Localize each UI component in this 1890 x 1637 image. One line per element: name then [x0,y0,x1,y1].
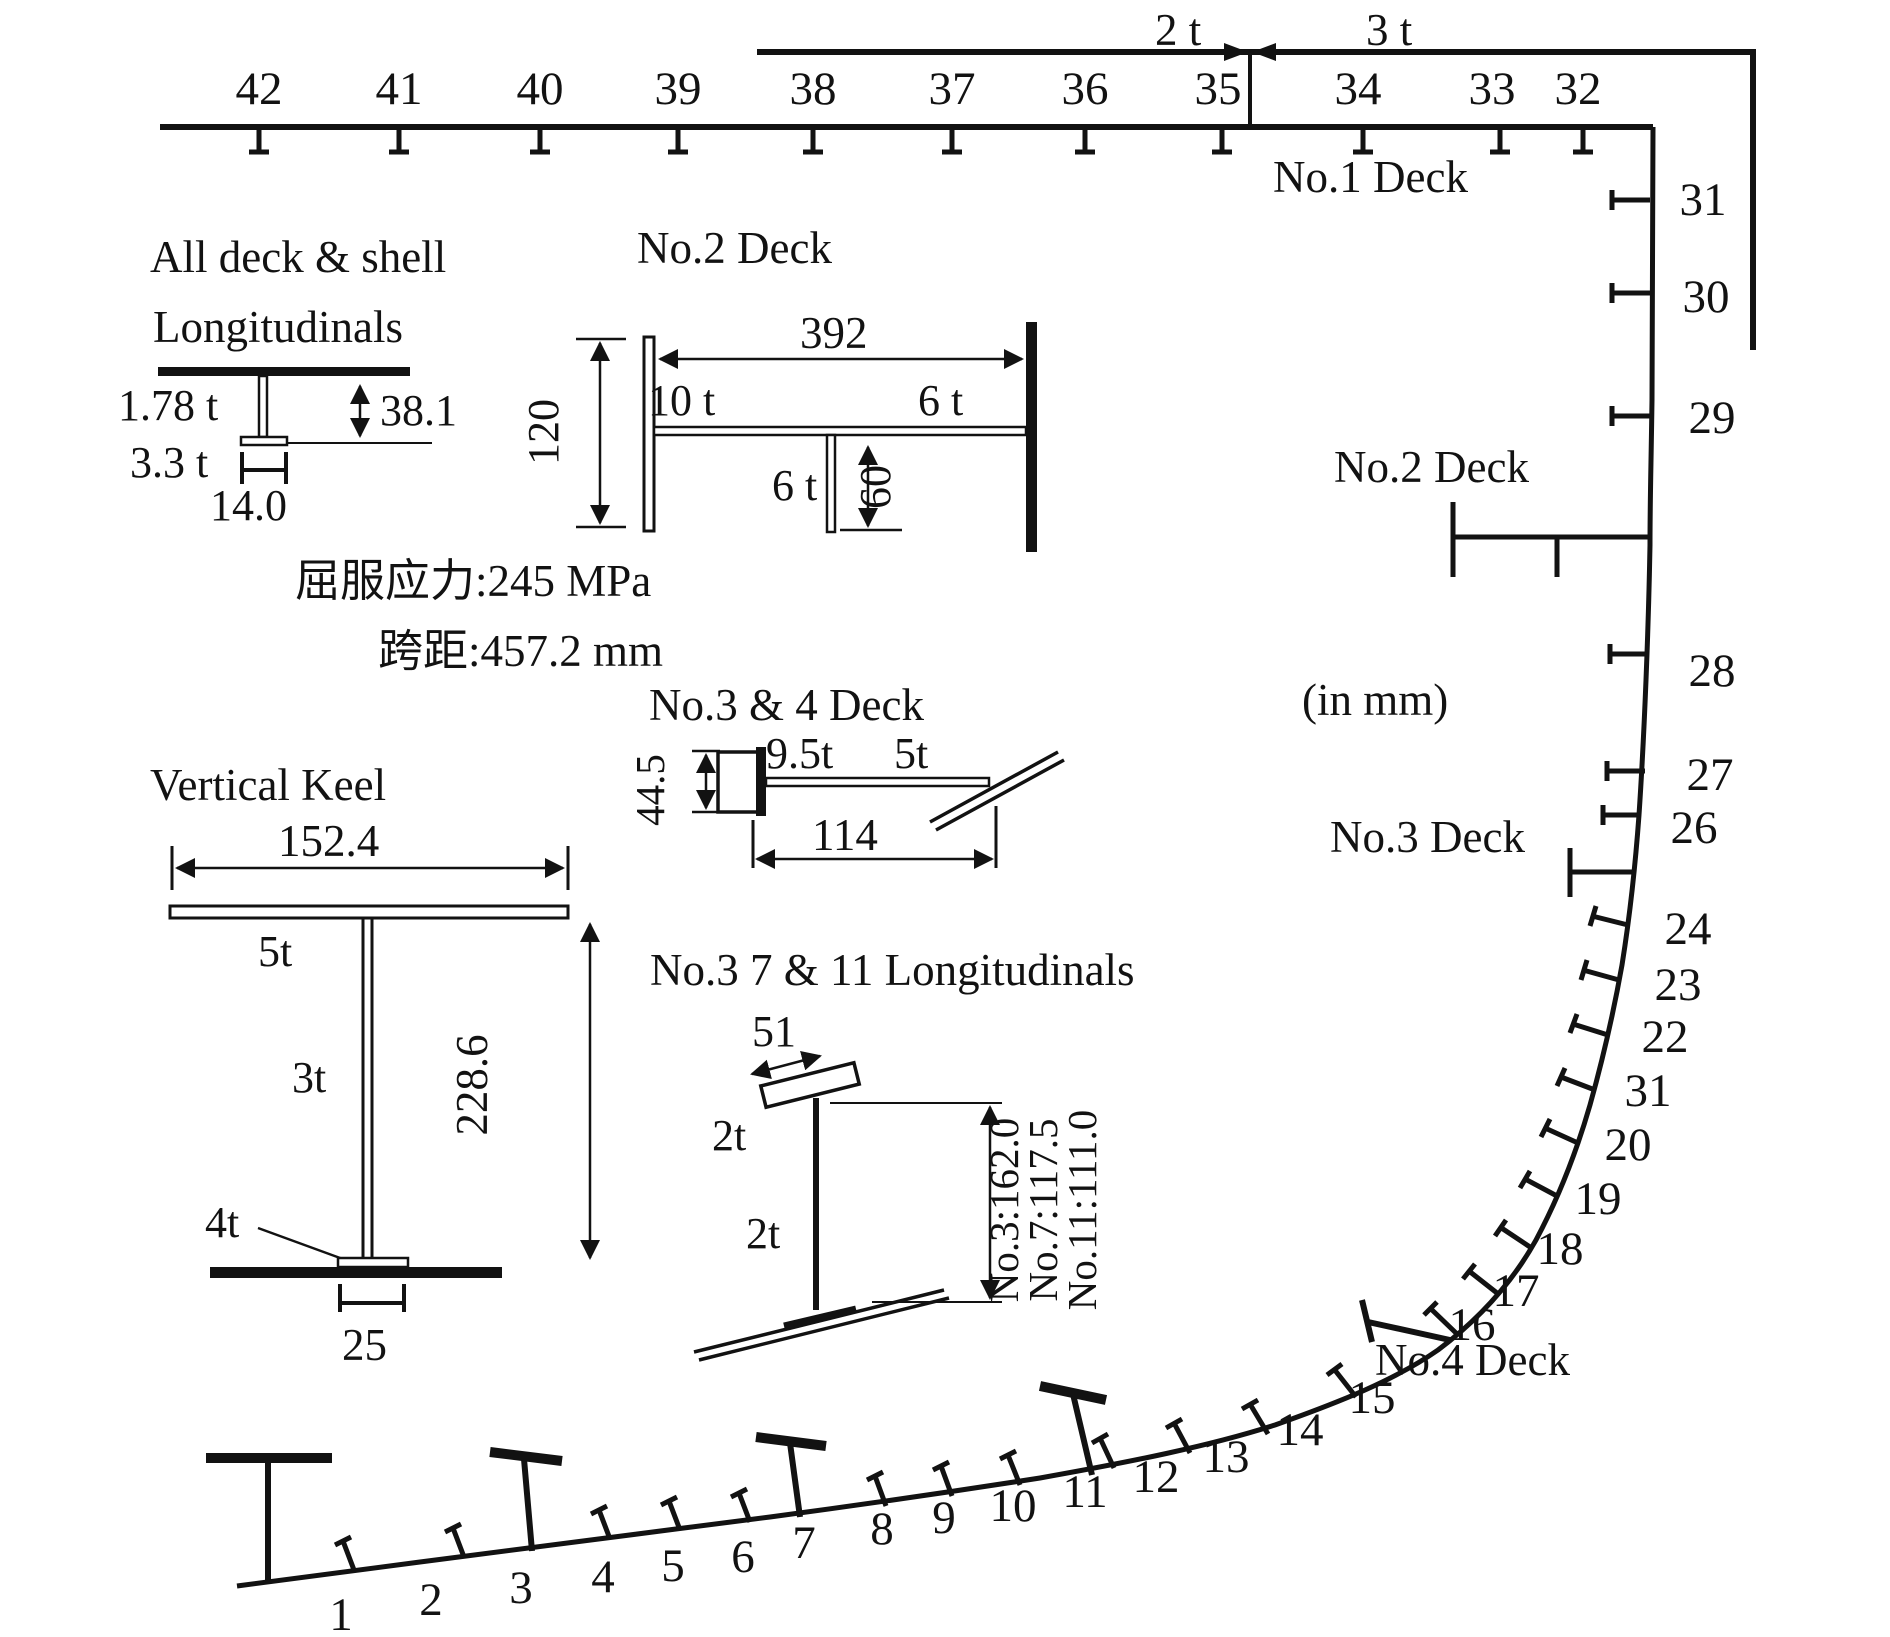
frame-number: 14 [1277,1404,1324,1456]
frame-number: 3 [509,1562,533,1614]
keel-top-flange [170,906,568,918]
frame-number: 12 [1133,1451,1180,1503]
no34-width-label: 114 [812,810,878,860]
units-note: (in mm) [1302,675,1448,725]
keel-web-foot [338,1258,408,1267]
no3711-shell-diagonal [694,1290,949,1360]
no34-plate [766,778,989,786]
plating-right-label: 3 t [1366,5,1413,55]
midship-section-drawing: 2 t 3 t 42 41 40 39 38 37 36 35 34 33 32… [0,0,1890,1637]
longitudinals-detail: All deck & shell Longitudinals 1.78 t 3.… [118,232,457,530]
frame-number: 26 [1671,802,1718,854]
frame-number: 27 [1687,749,1734,801]
no3711-depth-no11-label: No.11:111.0 [1059,1110,1105,1310]
keel-bottom-plate [210,1267,502,1278]
plate-thickness-label: 10 t [648,376,715,425]
sheer-line [757,52,1753,350]
keel-depth-label: 228.6 [447,1034,497,1135]
frame-number: 18 [1537,1223,1584,1275]
keel-web-thickness-label: 3t [292,1053,326,1102]
frame-number: 31 [1680,174,1727,226]
girder-plate [654,427,1026,435]
no34-web-bar [756,747,766,816]
no3711-dim-refs [830,1103,1002,1302]
no34-deck-detail: No.3 & 4 Deck 44.5 9.5t 5t 114 [627,680,1064,868]
no3-7-11-detail: No.3 7 & 11 Longitudinals 51 2t 2t No.3:… [650,945,1135,1360]
no2-deck-label: No.2 Deck [1334,442,1529,492]
no2-deck-detail: No.2 Deck 120 392 60 10 t 6 t 6 t [519,223,1037,552]
keel-bottom-thickness-label: 4t [205,1198,239,1247]
no3711-width-dim-line [752,1056,820,1074]
no3711-title: No.3 7 & 11 Longitudinals [650,945,1135,995]
frame-number: 7 [792,1517,816,1569]
frame-number: 32 [1555,63,1602,115]
no3711-flange-section [761,1063,859,1108]
no3711-web-thickness-label: 2t [746,1209,780,1258]
keel-foot-bracket [340,1284,404,1312]
girder-left-web [644,337,654,531]
frame-number: 1 [329,1589,353,1637]
frame-number: 41 [376,63,423,115]
no34-channel-section [718,752,762,812]
no3711-flange-thickness-label: 2t [712,1111,746,1160]
frame-number: 34 [1335,63,1382,115]
keel-width-label: 152.4 [278,816,379,866]
keel-web [363,918,372,1264]
frame-number: 28 [1689,645,1736,697]
web-depth-label: 38.1 [380,386,457,435]
girder-stiffener [827,435,835,532]
frame-number: 15 [1349,1372,1396,1424]
plating-arrow-left-icon [1224,43,1248,61]
frame-number: 6 [731,1531,755,1583]
frame-number: 42 [236,63,283,115]
frame-number: 24 [1665,903,1712,955]
longitudinal-web-section [259,376,267,437]
frame-number: 19 [1575,1173,1622,1225]
web-thickness-label: 1.78 t [118,381,218,430]
frame-number: 36 [1062,63,1109,115]
frame-number: 2 [419,1574,443,1626]
flange-width-bracket [242,452,286,484]
frame-number: 17 [1493,1265,1540,1317]
no2-deck-detail-title: No.2 Deck [637,223,832,273]
yield-stress-note: 屈服应力:245 MPa [295,556,651,606]
longitudinals-title-line1: All deck & shell [150,232,446,282]
frame-number: 9 [932,1492,956,1544]
keel-title: Vertical Keel [150,760,386,810]
no3711-width-label: 51 [752,1007,796,1056]
frame-number: 29 [1689,392,1736,444]
frame-number: 33 [1469,63,1516,115]
longitudinal-flange-section [241,437,287,445]
frame-number: 40 [517,63,564,115]
no34-plate-thickness-label: 5t [894,729,928,778]
flange-width-label: 14.0 [210,481,287,530]
frame-number: 35 [1195,63,1242,115]
frame-number: 20 [1605,1119,1652,1171]
drawing-canvas: 2 t 3 t 42 41 40 39 38 37 36 35 34 33 32… [0,0,1890,1637]
frame-number: 31 [1625,1065,1672,1117]
frame-number: 38 [790,63,837,115]
longitudinals-title-line2: Longitudinals [153,302,403,352]
girder-right-flange [1026,322,1037,552]
frame-number: 4 [591,1551,615,1603]
no34-deck-title: No.3 & 4 Deck [649,680,924,730]
keel-flange-thickness-label: 5t [258,927,292,976]
frame-number: 30 [1683,271,1730,323]
no34-depth-label: 44.5 [627,754,673,826]
plating-left-label: 2 t [1155,5,1202,55]
vertical-keel-detail: Vertical Keel 152.4 5t 3t 228.6 4t 25 [150,760,590,1370]
frame-number: 8 [870,1503,894,1555]
stiffener-depth-label: 60 [851,465,900,509]
no34-web-thickness-label: 9.5t [766,729,833,778]
deck-plate-section [158,367,410,376]
frame-number: 39 [655,63,702,115]
frame-number: 10 [990,1480,1037,1532]
flange-thickness-label: 6 t [918,376,963,425]
no4-deck-label: No.4 Deck [1375,1335,1570,1385]
span-note: 跨距:457.2 mm [378,626,663,676]
girder-span-label: 392 [800,308,868,358]
flange-thickness-label: 3.3 t [130,438,208,487]
frame-number: 5 [661,1540,685,1592]
web-frame-flanges [206,1386,1106,1461]
keel-foot-width-label: 25 [342,1320,387,1370]
no1-deck-label: No.1 Deck [1273,152,1468,202]
frame-number: 13 [1203,1431,1250,1483]
no2-deck-stub [1453,502,1650,577]
plating-arrow-right-icon [1252,43,1276,61]
no3-deck-stub [1570,848,1634,897]
no3-deck-label: No.3 Deck [1330,812,1525,862]
frame-number: 22 [1642,1011,1689,1063]
frame-ticks-top [249,129,1593,152]
frame-number: 23 [1655,959,1702,1011]
girder-depth-label: 120 [519,399,568,465]
frame-number: 37 [929,63,976,115]
frame-number: 11 [1062,1466,1107,1518]
stiffener-thickness-label: 6 t [772,461,817,510]
